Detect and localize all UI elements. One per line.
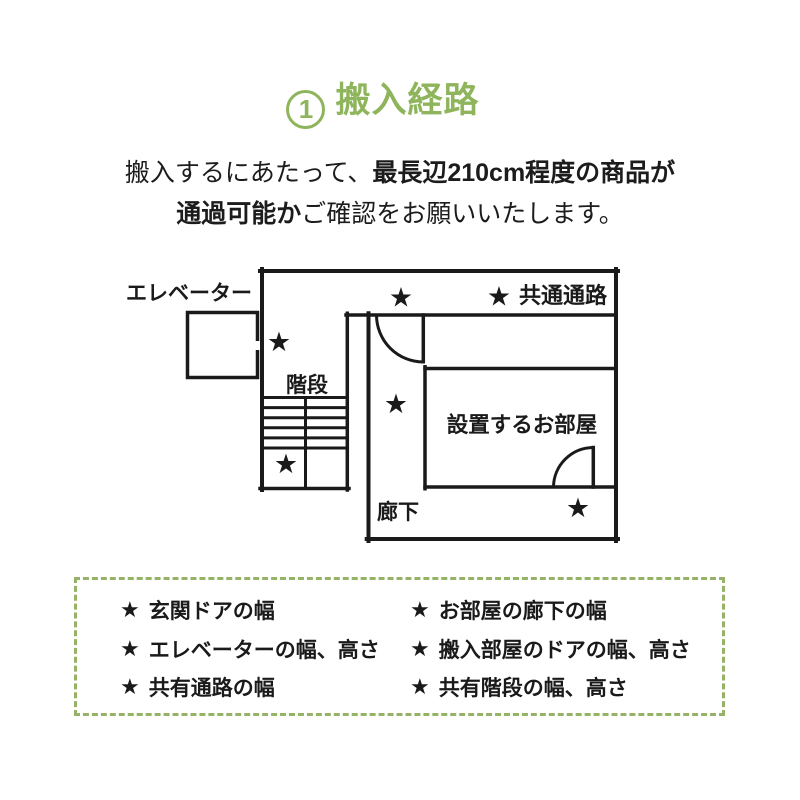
elevator-door-gap [254,341,260,350]
checklist-item: ★ 搬入部屋のドアの幅、高さ [410,630,691,669]
checklist-item: ★ 共有階段の幅、高さ [410,668,691,707]
checklist-item: ★ エレベーターの幅、高さ [120,630,380,669]
room-label: 設置するお部屋 [447,412,598,437]
page: 1搬入経路 搬入するにあたって、最長辺210cm程度の商品が 通過可能かご確認を… [0,0,800,800]
star-bullet-icon: ★ [120,597,140,623]
route-star-icon: ★ [487,282,511,312]
checklist-item-label: 搬入部屋のドアの幅、高さ [439,634,691,664]
door-arc-corridor [377,315,424,362]
stairs-label: 階段 [286,373,328,397]
checklist-item: ★ 玄関ドアの幅 [120,591,380,630]
checklist-item: ★ 共有通路の幅 [120,668,380,707]
checklist-box: ★ 玄関ドアの幅 ★ エレベーターの幅、高さ ★ 共有通路の幅 ★ お部屋の廊下… [74,577,725,716]
route-star-icon: ★ [389,283,413,313]
checklist-item-label: エレベーターの幅、高さ [149,634,380,664]
elevator-box [188,313,258,378]
star-bullet-icon: ★ [410,674,430,700]
elevator-label: エレベーター [126,282,252,305]
checklist-item-label: 玄関ドアの幅 [149,595,275,625]
checklist-item-label: お部屋の廊下の幅 [439,595,607,625]
checklist-left-column: ★ 玄関ドアの幅 ★ エレベーターの幅、高さ ★ 共有通路の幅 [120,591,380,707]
checklist-item-label: 共有階段の幅、高さ [439,672,628,702]
door-arc-room [554,448,594,488]
route-star-icon: ★ [566,493,590,523]
checklist-right-column: ★ お部屋の廊下の幅 ★ 搬入部屋のドアの幅、高さ ★ 共有階段の幅、高さ [410,591,691,707]
checklist-item: ★ お部屋の廊下の幅 [410,591,691,630]
star-bullet-icon: ★ [410,597,430,623]
corridor-label: 廊下 [377,500,419,524]
route-star-icon: ★ [267,327,291,357]
common-passage-label: 共通通路 [519,283,608,308]
star-bullet-icon: ★ [410,636,430,662]
star-bullet-icon: ★ [120,674,140,700]
checklist-item-label: 共有通路の幅 [149,672,275,702]
star-bullet-icon: ★ [120,636,140,662]
route-star-icon: ★ [384,389,408,419]
route-star-icon: ★ [274,449,298,479]
